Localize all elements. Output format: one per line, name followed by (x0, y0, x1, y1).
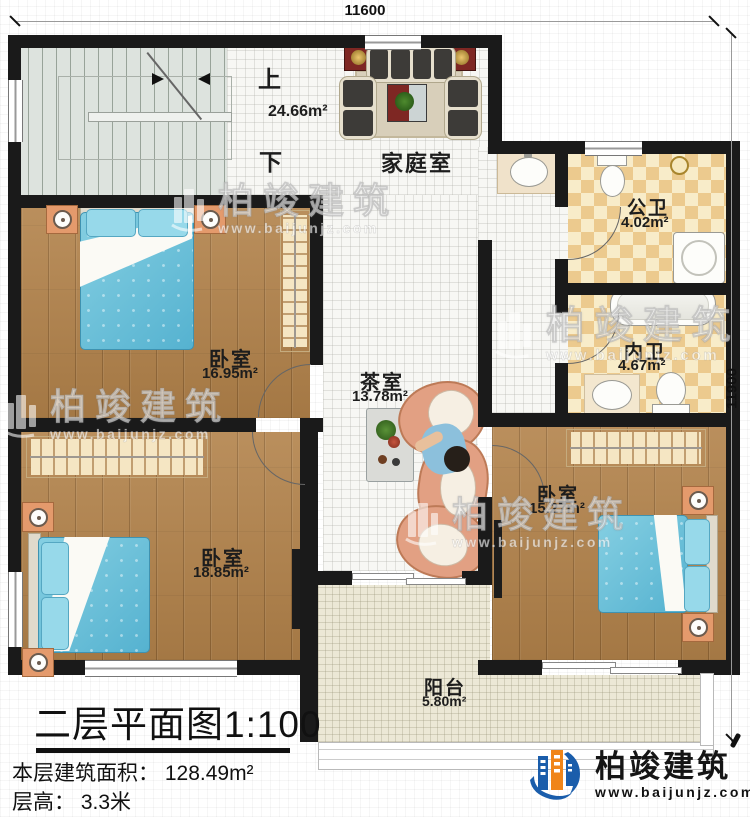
pillow (41, 597, 69, 650)
sofa-cushion (413, 49, 431, 79)
wall (318, 571, 352, 585)
nightstand (22, 648, 54, 677)
wardrobe-rod (30, 456, 204, 458)
sofa-right (444, 76, 482, 140)
pillow (41, 542, 69, 595)
sliding-door-panel (610, 667, 682, 674)
nightstand (46, 205, 78, 234)
wardrobe-rod (570, 447, 702, 449)
sofa-cushion (370, 49, 388, 79)
plant (454, 50, 469, 65)
public-bath-area: 4.02m² (621, 214, 669, 231)
wall (478, 413, 740, 427)
nightstand (682, 486, 714, 515)
sofa-cushion (391, 49, 409, 79)
pillow (684, 519, 710, 565)
window (8, 80, 23, 142)
lamp (201, 210, 220, 229)
pillow (86, 209, 136, 237)
lamp (689, 618, 708, 637)
family-room-label: 家庭室 (381, 146, 453, 178)
bathtub-basin (617, 291, 709, 320)
stairs-down-label: 下 (259, 143, 282, 177)
wall (478, 660, 542, 675)
nightstand (194, 205, 226, 234)
lamp (53, 210, 72, 229)
flower (388, 436, 400, 448)
company-name: 柏竣建筑 (595, 751, 731, 782)
lamp (29, 653, 48, 672)
company-logo: 柏竣建筑 www.baijunjz.com (524, 746, 750, 804)
sliding-door-panel (352, 573, 414, 580)
inner-bath-area: 4.67m² (618, 357, 666, 374)
balcony-floor (490, 675, 712, 742)
plant (351, 50, 366, 65)
tv (494, 520, 502, 598)
bedroom-right-area: 15.27m² (529, 500, 585, 517)
dimension-height-label: 11900 (724, 359, 741, 419)
bedroom-top-left-area: 16.95m² (202, 365, 258, 382)
wall (462, 571, 490, 585)
sofa-cushion (448, 80, 478, 107)
lamp (29, 508, 48, 527)
company-logo-icon (524, 746, 588, 804)
window (585, 141, 642, 156)
sofa-cushion (448, 110, 478, 137)
stair-landing-bar (88, 112, 232, 122)
dimension-width-label: 11600 (320, 2, 410, 19)
floor-area-text: 本层建筑面积： 128.49m² (12, 757, 254, 787)
sofa-cushion (434, 49, 452, 79)
sliding-door-panel (542, 662, 616, 669)
wall (555, 363, 568, 413)
family-room-area: 24.66m² (268, 103, 328, 121)
balcony-area: 5.80m² (422, 693, 466, 709)
company-website: www.baijunjz.com (595, 784, 750, 800)
wall (310, 195, 323, 365)
window (8, 572, 23, 647)
wash-basin (510, 157, 548, 187)
arrowhead-icon (198, 73, 210, 85)
window (365, 35, 421, 50)
sliding-door-panel (406, 578, 466, 585)
wash-basin (592, 380, 632, 410)
wall (14, 35, 502, 48)
dimension-line-top (15, 21, 714, 22)
pillow (684, 566, 710, 612)
tea-cup (378, 455, 387, 464)
floor-height-text: 层高： 3.3米 (12, 786, 131, 816)
nightstand (682, 613, 714, 642)
wall (555, 141, 568, 207)
tv (292, 549, 300, 629)
washer-drum (681, 240, 717, 276)
ceiling-light (670, 156, 689, 175)
bedroom-bottom-left-area: 18.85m² (193, 564, 249, 581)
sofa-cushion (343, 80, 373, 107)
tea-cup (392, 458, 400, 466)
wall (555, 259, 568, 313)
lamp (689, 491, 708, 510)
balcony-railing (700, 673, 714, 746)
person-head (444, 446, 470, 472)
sofa-cushion (343, 110, 373, 137)
wardrobe-rod (294, 214, 296, 348)
stairs-up-label: 上 (258, 60, 281, 94)
title-underline (36, 748, 290, 753)
plant (395, 92, 414, 111)
toilet (656, 372, 686, 408)
sofa-top (366, 45, 456, 83)
wall (568, 283, 726, 295)
balcony-floor (318, 585, 490, 742)
pillow (138, 209, 188, 237)
nightstand (22, 502, 54, 532)
tea-room-area: 13.78m² (352, 388, 408, 405)
wall (488, 35, 502, 147)
arrowhead-icon (152, 73, 164, 85)
wall (8, 418, 256, 432)
toilet (600, 165, 625, 197)
plan-title: 二层平面图1:100 (34, 694, 322, 748)
wall (478, 240, 492, 413)
sofa-left (339, 76, 377, 140)
window (85, 660, 237, 677)
